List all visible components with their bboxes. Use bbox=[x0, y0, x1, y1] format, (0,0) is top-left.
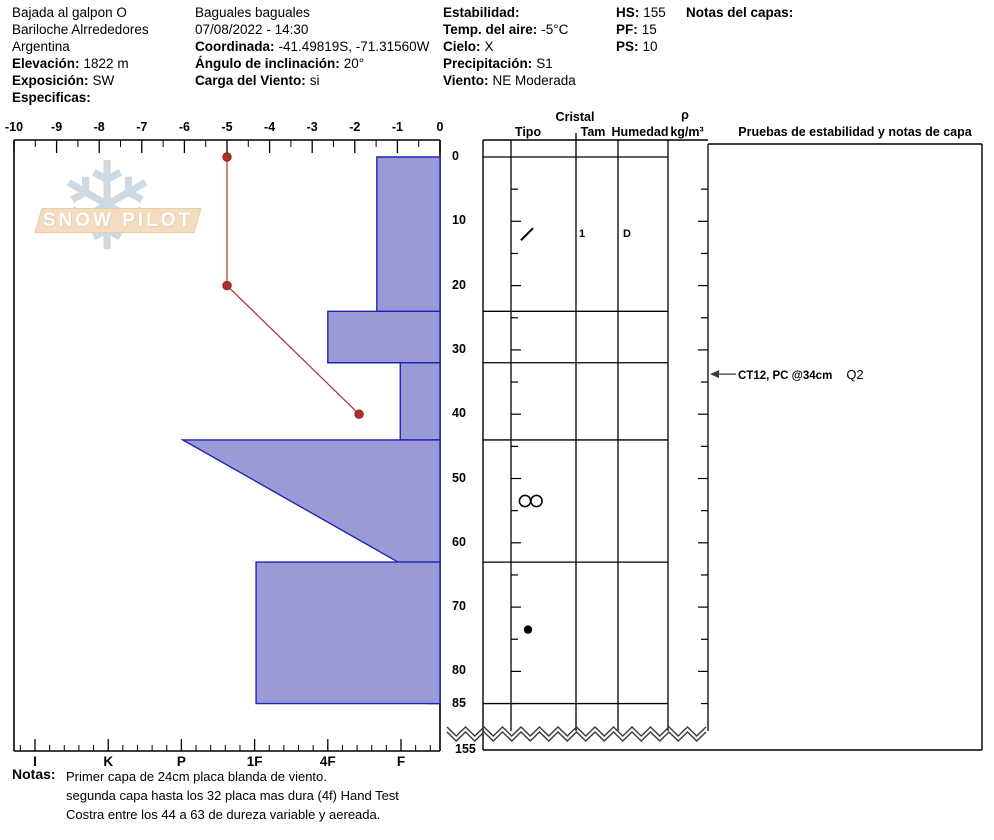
note-line: Costra entre los 44 a 63 de dureza varia… bbox=[66, 805, 380, 824]
temp-tick-label: -10 bbox=[5, 120, 23, 134]
depth-tick-label: 0 bbox=[452, 149, 459, 163]
temperature-point-2 bbox=[355, 410, 363, 418]
depth-tick-label: 40 bbox=[452, 406, 466, 420]
temp-tick-label: 0 bbox=[437, 120, 444, 134]
notes-label: Notas: bbox=[12, 766, 56, 782]
test-arrow-head bbox=[710, 370, 719, 378]
grain-symbol-circle-2 bbox=[531, 495, 542, 506]
temp-tick-label: -3 bbox=[307, 120, 318, 134]
snow-layer-bar-3 bbox=[183, 440, 440, 562]
depth-tick-label: 70 bbox=[452, 599, 466, 613]
depth-tick-label: 30 bbox=[452, 342, 466, 356]
temp-tick-label: -8 bbox=[94, 120, 105, 134]
depth-tick-label: 80 bbox=[452, 663, 466, 677]
test-shear-quality: Q2 bbox=[846, 367, 863, 382]
depth-tick-label: 50 bbox=[452, 471, 466, 485]
temp-tick-label: -2 bbox=[349, 120, 360, 134]
temp-tick-label: -1 bbox=[392, 120, 403, 134]
temperature-point-1 bbox=[223, 281, 231, 289]
temperature-point-0 bbox=[223, 153, 231, 161]
temp-tick-label: -4 bbox=[264, 120, 275, 134]
grain-humidity-value: D bbox=[623, 228, 631, 240]
snow-layer-bar-0 bbox=[377, 157, 440, 311]
stability-test-annotation: CT12, PC @34cmQ2 bbox=[738, 366, 864, 384]
temperature-line bbox=[227, 157, 359, 414]
depth-tick-label: 10 bbox=[452, 213, 466, 227]
snowpilot-profile-page: Bajada al galpon OBariloche Alrrededores… bbox=[0, 0, 994, 840]
column-header-density-unit: kg/m³ bbox=[670, 125, 703, 139]
depth-tick-label: 20 bbox=[452, 278, 466, 292]
grain-symbol-dot bbox=[524, 625, 532, 633]
grain-size-value: 1 bbox=[579, 228, 585, 240]
temp-tick-label: -6 bbox=[179, 120, 190, 134]
note-line: segunda capa hasta los 32 placa mas dura… bbox=[66, 786, 399, 805]
crystal-group-header: Cristal bbox=[556, 110, 595, 124]
column-header-tam: Tam bbox=[581, 125, 606, 139]
depth-tick-label: 60 bbox=[452, 535, 466, 549]
snow-layer-bar-4 bbox=[256, 562, 440, 703]
snow-layer-bar-2 bbox=[400, 363, 440, 440]
temp-tick-label: -5 bbox=[221, 120, 232, 134]
grain-symbol-circle-1 bbox=[519, 495, 530, 506]
note-line: Primer capa de 24cm placa blanda de vien… bbox=[66, 767, 327, 786]
axis-break-zigzag-2 bbox=[447, 732, 706, 741]
snow-layer-bar-1 bbox=[328, 311, 440, 362]
test-result-label: CT12, PC @34cm bbox=[738, 370, 832, 382]
column-header-density-rho: ρ bbox=[681, 108, 689, 122]
stability-tests-panel-header: Pruebas de estabilidad y notas de capa bbox=[738, 125, 971, 139]
hardness-tick-label: F bbox=[397, 754, 405, 769]
temp-tick-label: -9 bbox=[51, 120, 62, 134]
grain-symbol-slash bbox=[521, 228, 533, 240]
column-header-humedad: Humedad bbox=[612, 125, 669, 139]
depth-tick-label: 85 bbox=[452, 696, 466, 710]
temp-tick-label: -7 bbox=[136, 120, 147, 134]
column-header-tipo: Tipo bbox=[515, 125, 541, 139]
depth-break-label: 155 bbox=[455, 742, 476, 756]
